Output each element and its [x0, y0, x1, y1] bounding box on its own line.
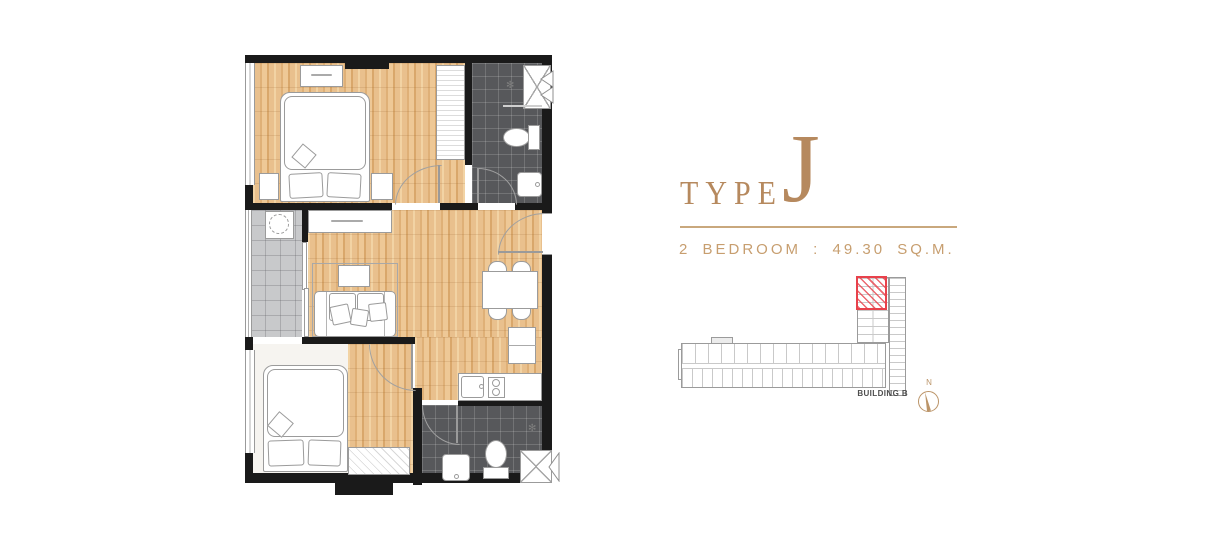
- toilet-1-bowl: [503, 128, 530, 147]
- shower-2-door-icon: [548, 452, 560, 482]
- washing-machine-drum: [269, 214, 289, 234]
- balcony-railing: [245, 210, 252, 337]
- sofa-side-table: [338, 265, 370, 287]
- wall-living-bedroom2: [302, 337, 415, 344]
- fridge-cabinet-line: [508, 345, 536, 346]
- shower-1-door-icon: [540, 70, 554, 104]
- bathroom-2-door-leaf: [456, 405, 458, 443]
- wall-bottom-stub: [335, 481, 393, 495]
- building-core: [711, 337, 733, 344]
- toilet-2-tank: [483, 467, 509, 479]
- unit-location-highlight: [856, 276, 887, 310]
- bed-1-pillow-left: [288, 172, 323, 199]
- shower-head-icon-2: ✻: [528, 424, 536, 434]
- building-right-column: [889, 277, 906, 396]
- wall-top: [245, 55, 552, 63]
- bathroom-1-door-leaf: [477, 168, 479, 203]
- wall-left-3: [245, 337, 253, 351]
- sofa-armrest-left: [326, 292, 327, 336]
- sink-1-faucet: [535, 182, 540, 187]
- stove-burner-2: [492, 388, 500, 396]
- wall-bedroom1-south-b: [440, 203, 478, 210]
- wall-left-2: [245, 185, 253, 210]
- bedroom-1-door-leaf: [438, 165, 440, 203]
- toilet-2-bowl: [485, 440, 507, 468]
- wardrobe-1: [436, 65, 465, 160]
- wall-wardrobe-bath1: [465, 63, 472, 165]
- compass-icon: N: [914, 378, 944, 424]
- building-end-unit: [678, 349, 682, 380]
- bed-2-pillow-left: [268, 439, 305, 466]
- building-label: BUILDING B: [824, 389, 908, 398]
- wall-left-4: [245, 453, 253, 483]
- nightstand-left: [259, 173, 279, 200]
- wall-bedroom1-south-c: [515, 203, 552, 210]
- page: ✻: [0, 0, 1220, 549]
- bed-1-pillow-right: [326, 172, 361, 199]
- bedroom-1-window: [245, 63, 255, 185]
- compass-north-letter: N: [914, 378, 944, 387]
- stove-burner-1: [492, 379, 500, 387]
- toilet-1-tank: [528, 125, 540, 150]
- nightstand-right: [371, 173, 393, 200]
- unit-spec-line: 2 BEDROOM : 49.30 SQ.M.: [679, 241, 955, 258]
- shower-1-halfwall: [503, 105, 542, 107]
- title-divider: [680, 226, 957, 228]
- sliding-door-panel-1: [302, 242, 307, 290]
- unit-type-letter: J: [782, 120, 820, 217]
- dresser-handle: [311, 74, 332, 76]
- dresser: [300, 65, 343, 87]
- dining-table: [482, 271, 538, 309]
- wall-right-lower: [542, 253, 552, 483]
- wall-bedroom1-south-a: [253, 203, 392, 210]
- unit-type-label: TYPE: [680, 177, 783, 211]
- bedroom-2-window: [245, 350, 255, 453]
- building-bar-units-bottom: [682, 369, 885, 387]
- entrance-door-leaf: [498, 251, 543, 253]
- sofa-pillow-1: [329, 303, 352, 326]
- bed-2-pillow-right: [308, 439, 342, 466]
- kitchen-sink-faucet: [479, 384, 484, 389]
- sliding-door-panel-2: [304, 288, 309, 337]
- sofa-pillow-2: [350, 308, 369, 327]
- sofa-pillow-3: [368, 302, 388, 322]
- bedroom-2-door-leaf: [411, 344, 413, 389]
- wall-bathroom2-west: [413, 388, 422, 485]
- building-site-plan: BUILDING B: [678, 276, 910, 402]
- tv-console-handle: [331, 220, 363, 222]
- building-bar-units-top: [682, 344, 885, 363]
- wall-top-chunk: [345, 55, 389, 69]
- building-bar: [681, 343, 886, 388]
- shower-head-icon: ✻: [506, 81, 514, 91]
- wardrobe-2: [348, 447, 410, 475]
- sink-2-faucet: [454, 474, 459, 479]
- floorplan: ✻: [245, 55, 560, 500]
